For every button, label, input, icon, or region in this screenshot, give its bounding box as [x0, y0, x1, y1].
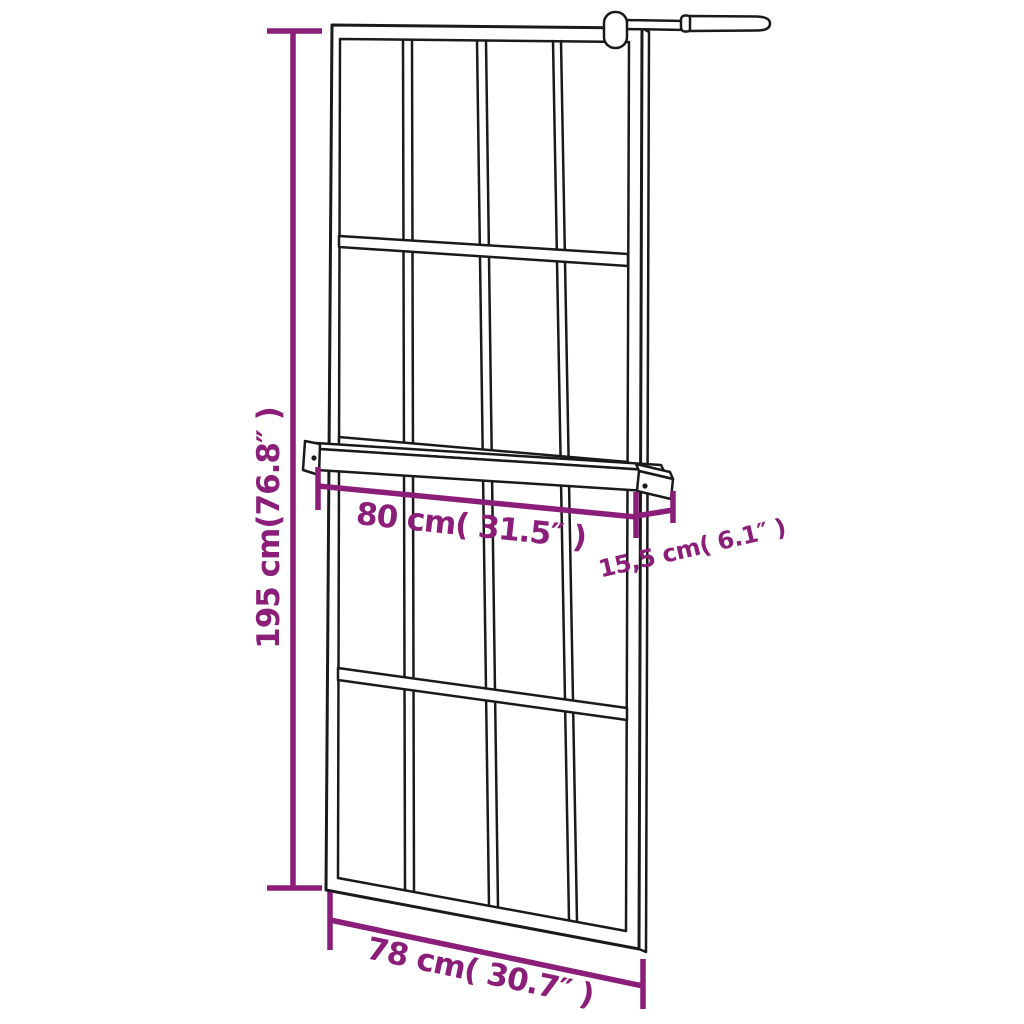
shelf-screw-left	[311, 455, 316, 460]
shower-wall-diagram: 195 cm(76.8″ ) 80 cm( 31.5″ ) 15,5 cm( 6…	[0, 0, 1024, 1024]
support-arm-inner-rod	[624, 20, 686, 30]
support-arm-clamp	[604, 12, 627, 48]
support-arm-outer-rod	[690, 16, 770, 31]
product-dimension-diagram: 195 cm(76.8″ ) 80 cm( 31.5″ ) 15,5 cm( 6…	[0, 0, 1024, 1024]
shelf-screw-right	[642, 483, 647, 488]
height-dimension-label: 195 cm(76.8″ )	[251, 407, 287, 649]
